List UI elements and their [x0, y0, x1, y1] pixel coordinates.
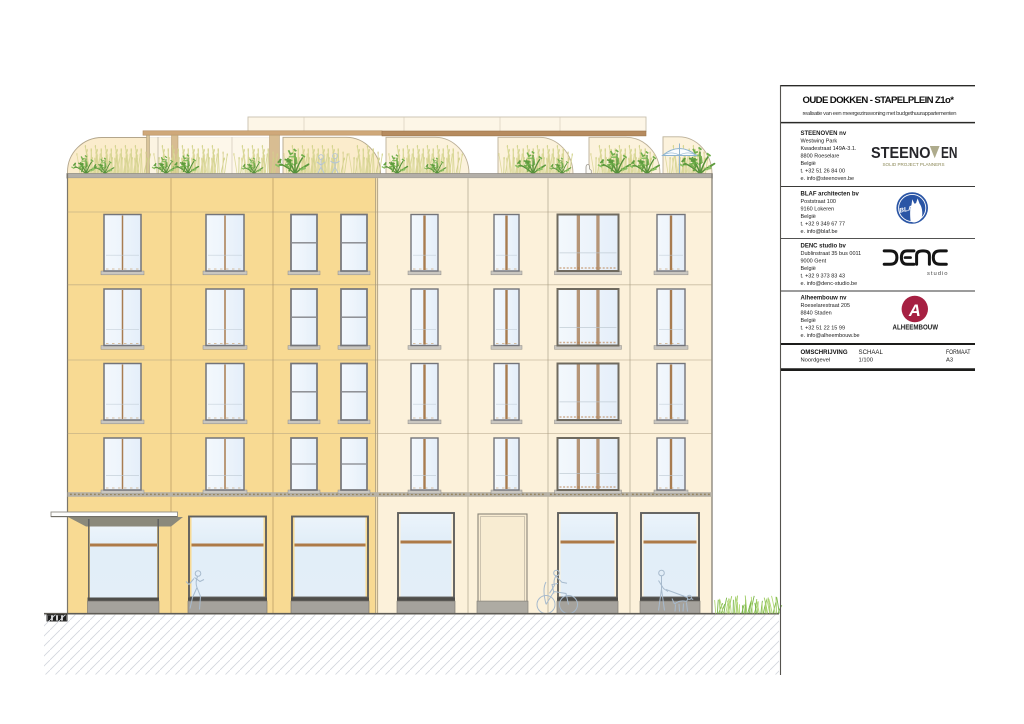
svg-text:9160 Lokeren: 9160 Lokeren: [801, 206, 835, 212]
svg-text:t. +32 9 373 83 43: t. +32 9 373 83 43: [801, 274, 846, 280]
svg-text:e. info@denc-studio.be: e. info@denc-studio.be: [801, 281, 858, 287]
svg-text:België: België: [801, 318, 816, 324]
svg-text:1/100: 1/100: [859, 357, 874, 363]
svg-text:8800 Roeselare: 8800 Roeselare: [801, 154, 840, 160]
svg-text:FORMAAT: FORMAAT: [946, 349, 971, 356]
svg-text:Dublinstraat 35 bus 0011: Dublinstraat 35 bus 0011: [801, 251, 862, 257]
svg-text:A: A: [908, 302, 921, 320]
svg-text:OMSCHRIJVING: OMSCHRIJVING: [801, 349, 848, 356]
svg-text:Alheembouw nv: Alheembouw nv: [801, 295, 848, 301]
svg-text:Poststraat 100: Poststraat 100: [801, 199, 836, 205]
svg-text:t. +32 51 26 84 00: t. +32 51 26 84 00: [801, 169, 846, 175]
svg-text:SCHAAL: SCHAAL: [859, 349, 884, 356]
svg-text:studio: studio: [927, 271, 948, 277]
svg-text:t. +32 51 22 15 99: t. +32 51 22 15 99: [801, 325, 846, 331]
svg-text:Noordgevel: Noordgevel: [801, 357, 831, 363]
svg-text:e. info@steenoven.be: e. info@steenoven.be: [801, 176, 855, 182]
svg-text:België: België: [801, 161, 816, 167]
svg-text:8840 Staden: 8840 Staden: [801, 310, 832, 316]
svg-text:België: België: [801, 214, 816, 220]
svg-text:9000 Gent: 9000 Gent: [801, 259, 827, 265]
svg-text:OUDE DOKKEN - STAPELPLEIN Z1o*: OUDE DOKKEN - STAPELPLEIN Z1o*: [803, 95, 955, 106]
svg-text:ALHEEMBOUW: ALHEEMBOUW: [893, 324, 939, 331]
svg-text:EN: EN: [941, 145, 958, 162]
svg-text:realisatie van een meergezinsw: realisatie van een meergezinswoning met …: [803, 111, 957, 117]
svg-text:e. info@blaf.be: e. info@blaf.be: [801, 229, 838, 235]
svg-text:Westwing Park: Westwing Park: [801, 139, 838, 145]
svg-text:STEENO: STEENO: [871, 145, 931, 162]
svg-text:STEENOVEN nv: STEENOVEN nv: [801, 131, 847, 137]
svg-text:e. info@alheembouw.be: e. info@alheembouw.be: [801, 333, 860, 339]
svg-text:BLAF architecten bv: BLAF architecten bv: [801, 191, 860, 197]
svg-text:SOLID PROJECT PLANNERS: SOLID PROJECT PLANNERS: [883, 162, 945, 167]
svg-text:Kwadestraat 149A-3.1.: Kwadestraat 149A-3.1.: [801, 146, 857, 152]
svg-text:A3: A3: [946, 357, 953, 363]
svg-text:DENC studio bv: DENC studio bv: [801, 244, 847, 250]
svg-text:Roeselarestraat 205: Roeselarestraat 205: [801, 303, 851, 309]
svg-text:t. +32 9 349 67 77: t. +32 9 349 67 77: [801, 221, 846, 227]
svg-text:België: België: [801, 266, 816, 272]
